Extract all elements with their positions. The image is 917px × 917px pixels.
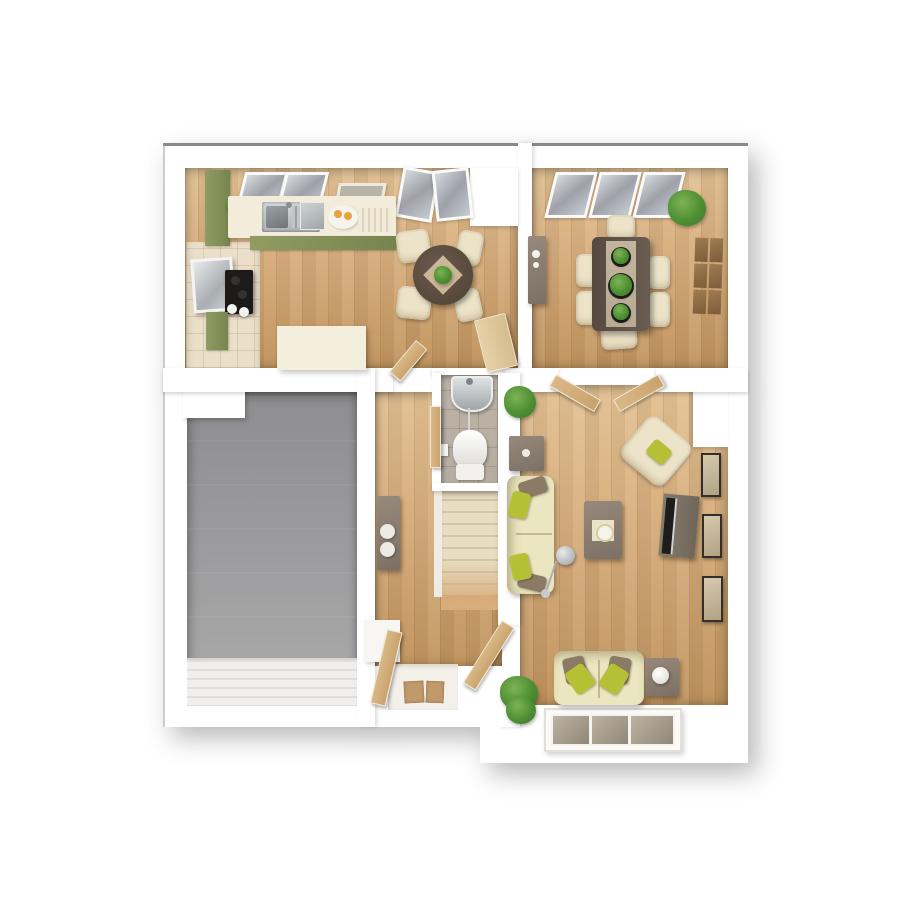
- living-plant-bottom: [506, 696, 536, 724]
- french-door: [431, 167, 473, 222]
- floor-plan: [0, 0, 917, 917]
- sink-basin: [266, 206, 288, 228]
- stool: [380, 524, 395, 539]
- arc-lamp-base: [541, 589, 550, 598]
- sideboard-vase: [533, 262, 539, 268]
- hob-burner: [238, 290, 247, 299]
- roll-holder: [441, 444, 448, 456]
- wood-panel: [694, 238, 708, 262]
- pot: [227, 304, 237, 314]
- table-plant: [613, 304, 629, 320]
- toilet-bowl: [453, 430, 487, 468]
- chimney-breast-breakfast: [470, 168, 518, 226]
- top-wall-edge: [163, 143, 748, 146]
- doormat: [403, 680, 424, 703]
- sofa-seat-line: [516, 533, 552, 535]
- wall-frame: [702, 576, 723, 622]
- garage-door: [187, 658, 357, 706]
- living-window-pane: [629, 714, 675, 746]
- wood-panel: [709, 238, 723, 262]
- wall-mid-right: [656, 368, 748, 392]
- wood-panel: [693, 290, 707, 314]
- arc-lamp-shade: [556, 546, 575, 565]
- bowl: [596, 524, 614, 542]
- table-plant: [610, 274, 632, 296]
- wood-panel: [709, 264, 723, 288]
- basin-tap: [466, 378, 473, 385]
- staircase-fade: [441, 558, 498, 610]
- faucet: [286, 202, 292, 208]
- garage-floor: [187, 392, 357, 660]
- wood-panel: [694, 264, 708, 288]
- wc-door: [430, 406, 441, 468]
- wall-garage-hallway: [357, 368, 375, 727]
- counter-runner: [358, 208, 392, 232]
- wall-frame: [702, 514, 722, 558]
- living-window-pane: [551, 714, 591, 746]
- juice-glass: [334, 210, 342, 218]
- pot: [239, 307, 249, 317]
- wood-panel: [708, 290, 722, 314]
- small-appliance: [300, 202, 325, 230]
- living-window-pane: [590, 714, 630, 746]
- living-plant-top: [504, 386, 536, 418]
- table-centerpiece-plant: [434, 266, 452, 284]
- wall-wc-bottom: [432, 483, 498, 491]
- sideboard: [528, 236, 546, 304]
- corner-plant: [668, 190, 706, 226]
- toilet-cistern: [456, 464, 484, 480]
- kitchen-low-cabinet: [206, 312, 228, 350]
- cream-island: [277, 326, 366, 370]
- candle: [522, 449, 530, 457]
- doormat: [426, 681, 445, 704]
- juice-glass: [344, 212, 352, 220]
- stool: [380, 542, 395, 557]
- table-lamp: [652, 667, 669, 684]
- dining-chair: [648, 292, 670, 327]
- dining-wall-panels: [693, 238, 724, 315]
- table-plant: [613, 248, 629, 264]
- hob-burner: [231, 276, 240, 285]
- left-wall-edge: [163, 143, 165, 727]
- sideboard-vase: [532, 250, 540, 258]
- kitchen-base-cabinets: [250, 236, 396, 250]
- wall-frame: [701, 453, 721, 497]
- stair-stringer: [434, 489, 442, 597]
- juice-tray: [328, 205, 358, 229]
- dining-chair: [648, 256, 670, 289]
- living-chimney-breast: [693, 385, 728, 447]
- dining-chair: [607, 215, 635, 239]
